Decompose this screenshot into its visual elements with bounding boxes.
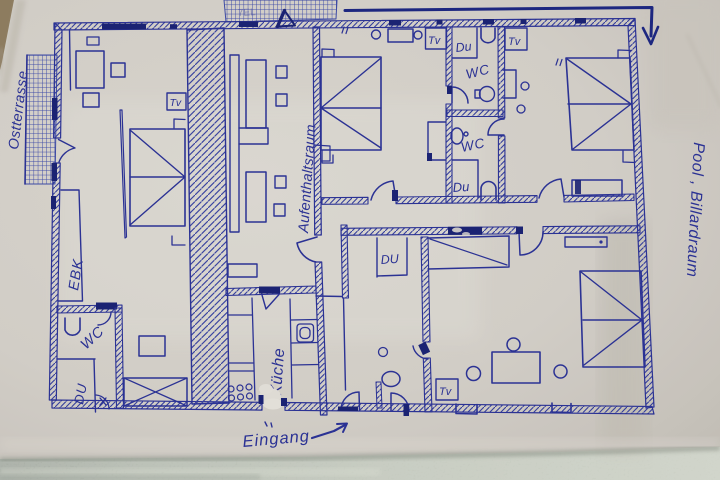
svg-text:Tv: Tv [439, 386, 453, 398]
svg-text:Du: Du [455, 39, 472, 55]
svg-text:Du: Du [452, 179, 470, 195]
svg-text:Tv: Tv [428, 35, 442, 47]
svg-text:Tv: Tv [508, 36, 522, 48]
svg-text:Tv: Tv [170, 97, 182, 109]
svg-text:DU: DU [380, 252, 400, 267]
